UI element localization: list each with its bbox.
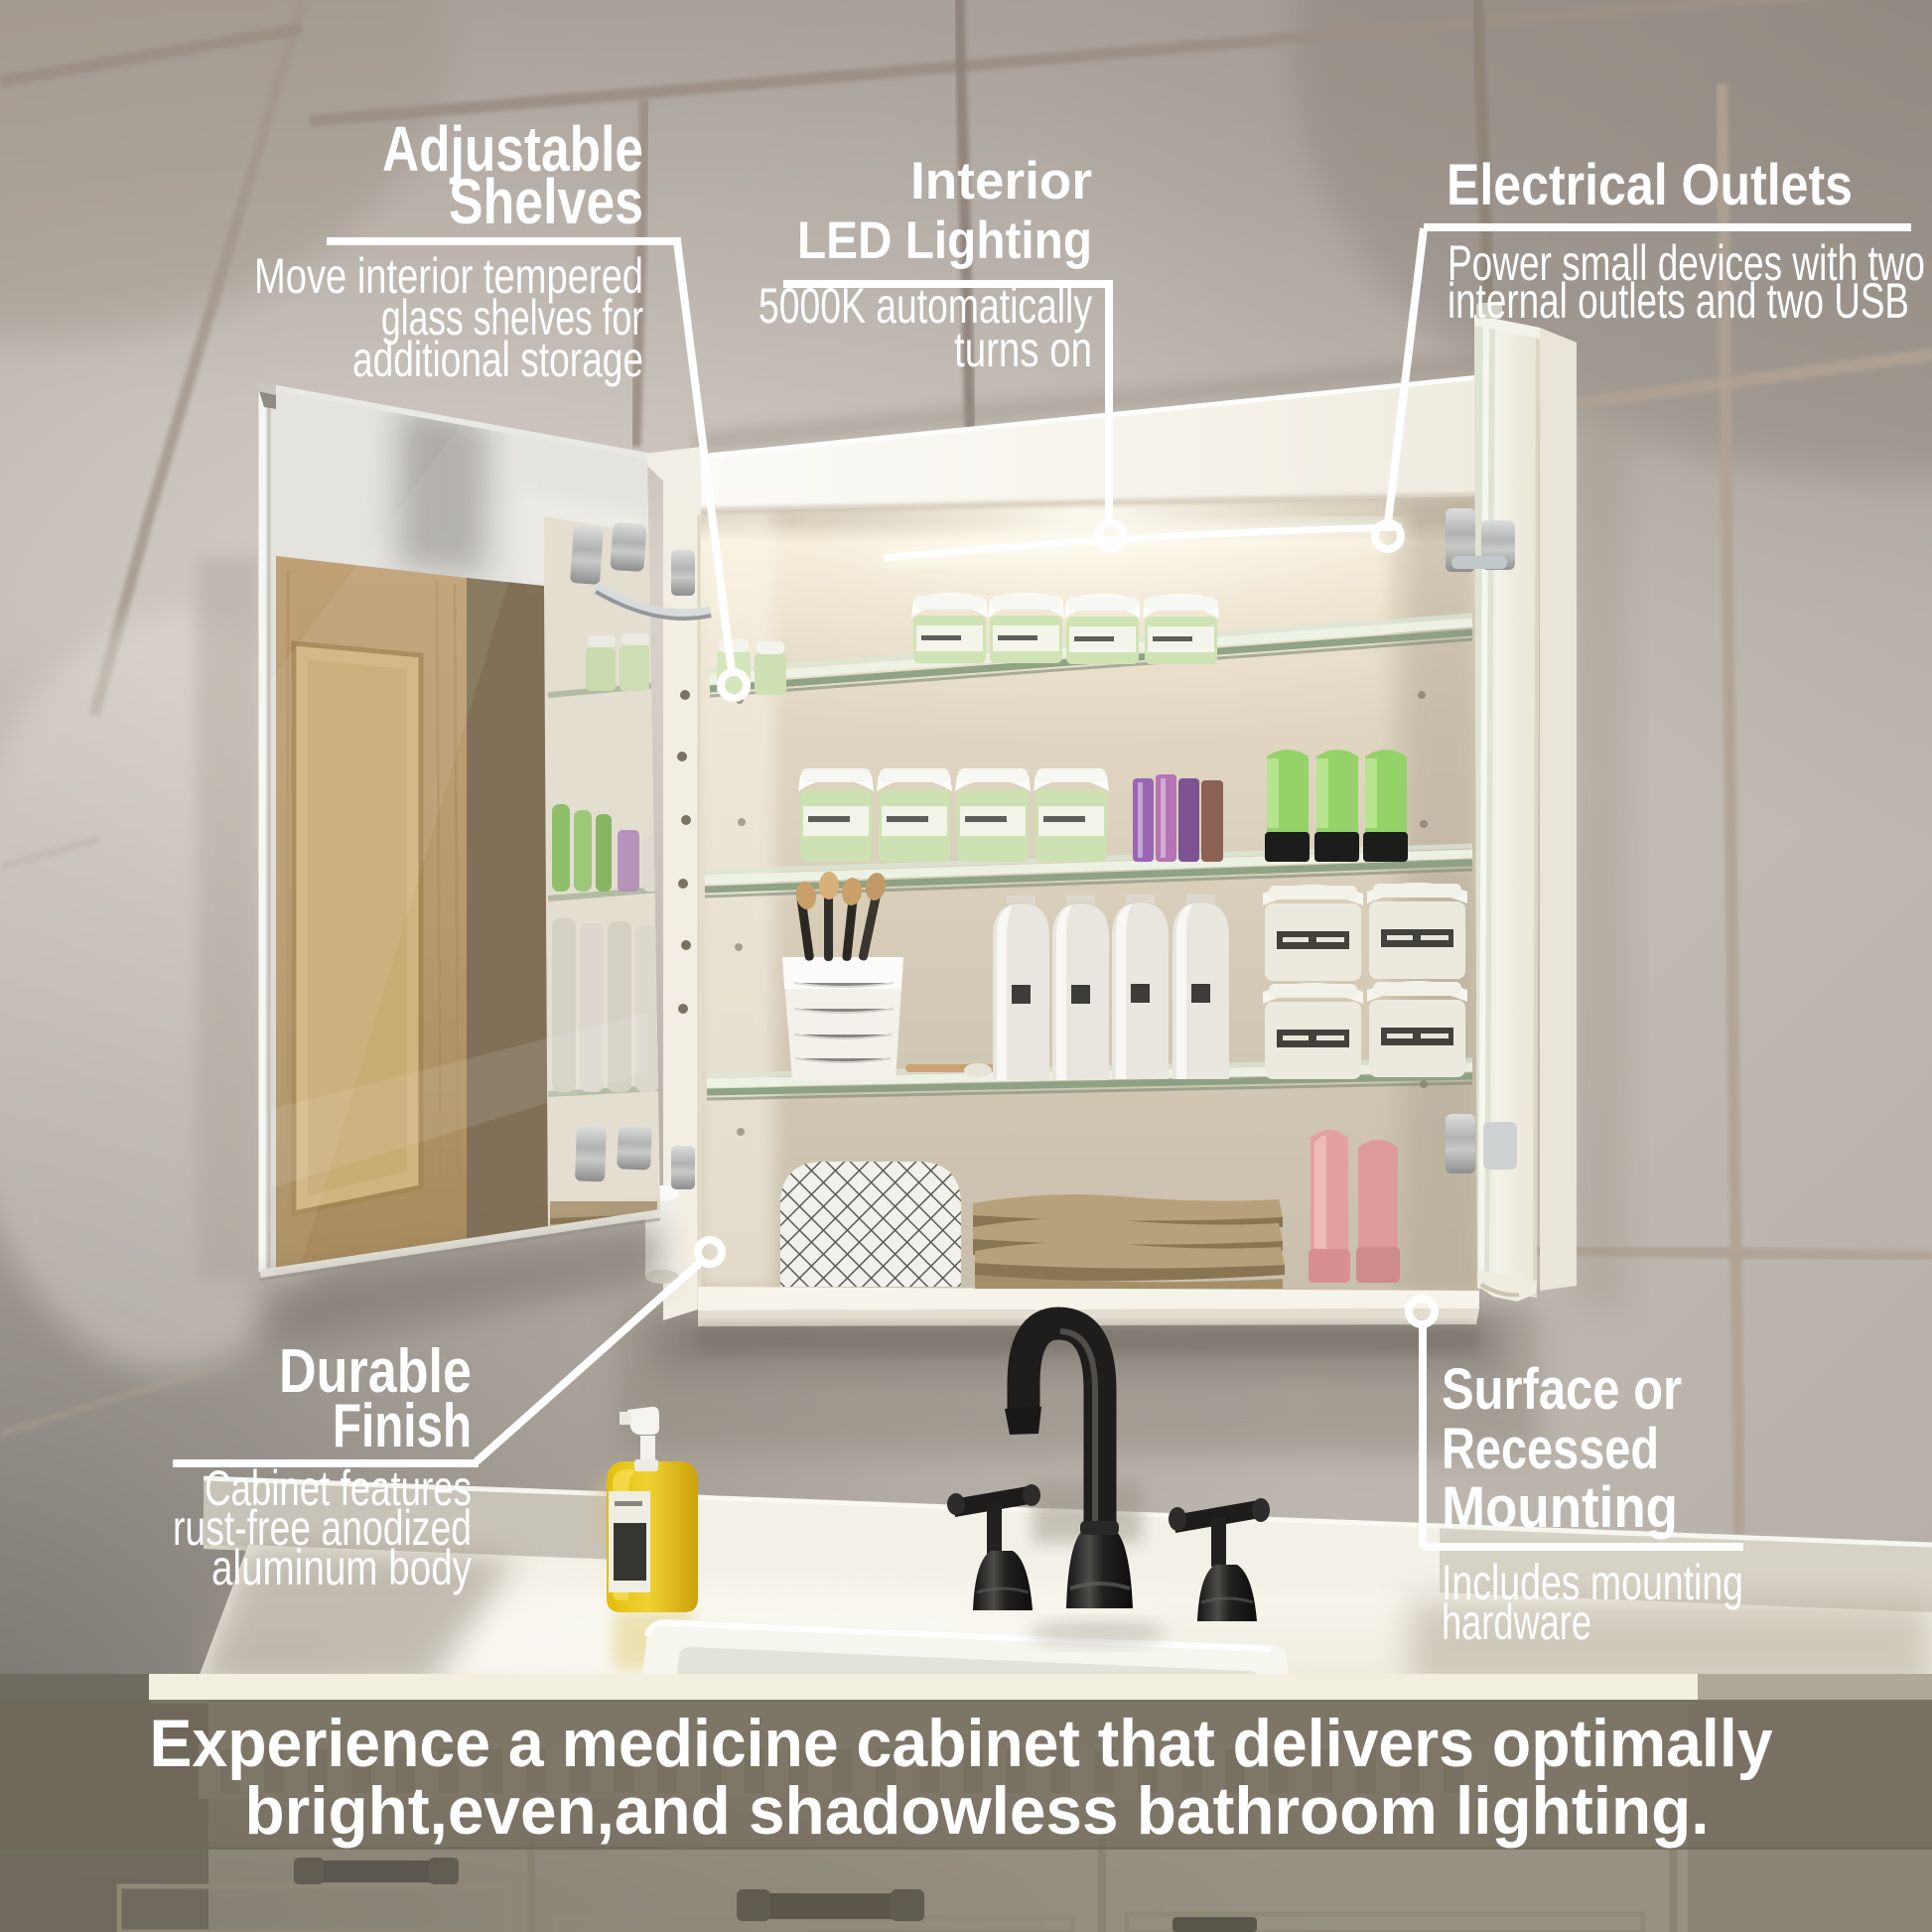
svg-text:additional storage: additional storage <box>352 332 643 387</box>
svg-text:Electrical Outlets: Electrical Outlets <box>1447 153 1853 217</box>
svg-text:Shelves: Shelves <box>449 166 643 237</box>
svg-text:aluminum body: aluminum body <box>211 1540 472 1595</box>
svg-text:LED Lighting: LED Lighting <box>797 211 1092 270</box>
svg-text:turns on: turns on <box>954 322 1092 377</box>
svg-text:hardware: hardware <box>1442 1594 1591 1650</box>
svg-text:internal outlets and two USB: internal outlets and two USB <box>1448 273 1909 329</box>
svg-text:Experience a medicine cabinet: Experience a medicine cabinet that deliv… <box>150 1706 1773 1781</box>
svg-text:Mounting: Mounting <box>1442 1475 1678 1540</box>
svg-text:Surface or: Surface or <box>1442 1357 1682 1422</box>
svg-text:Finish: Finish <box>333 1392 472 1460</box>
svg-text:Recessed: Recessed <box>1442 1417 1659 1481</box>
svg-text:Interior: Interior <box>910 152 1092 210</box>
svg-text:bright,even,and shadowless bat: bright,even,and shadowless bathroom ligh… <box>245 1773 1710 1849</box>
